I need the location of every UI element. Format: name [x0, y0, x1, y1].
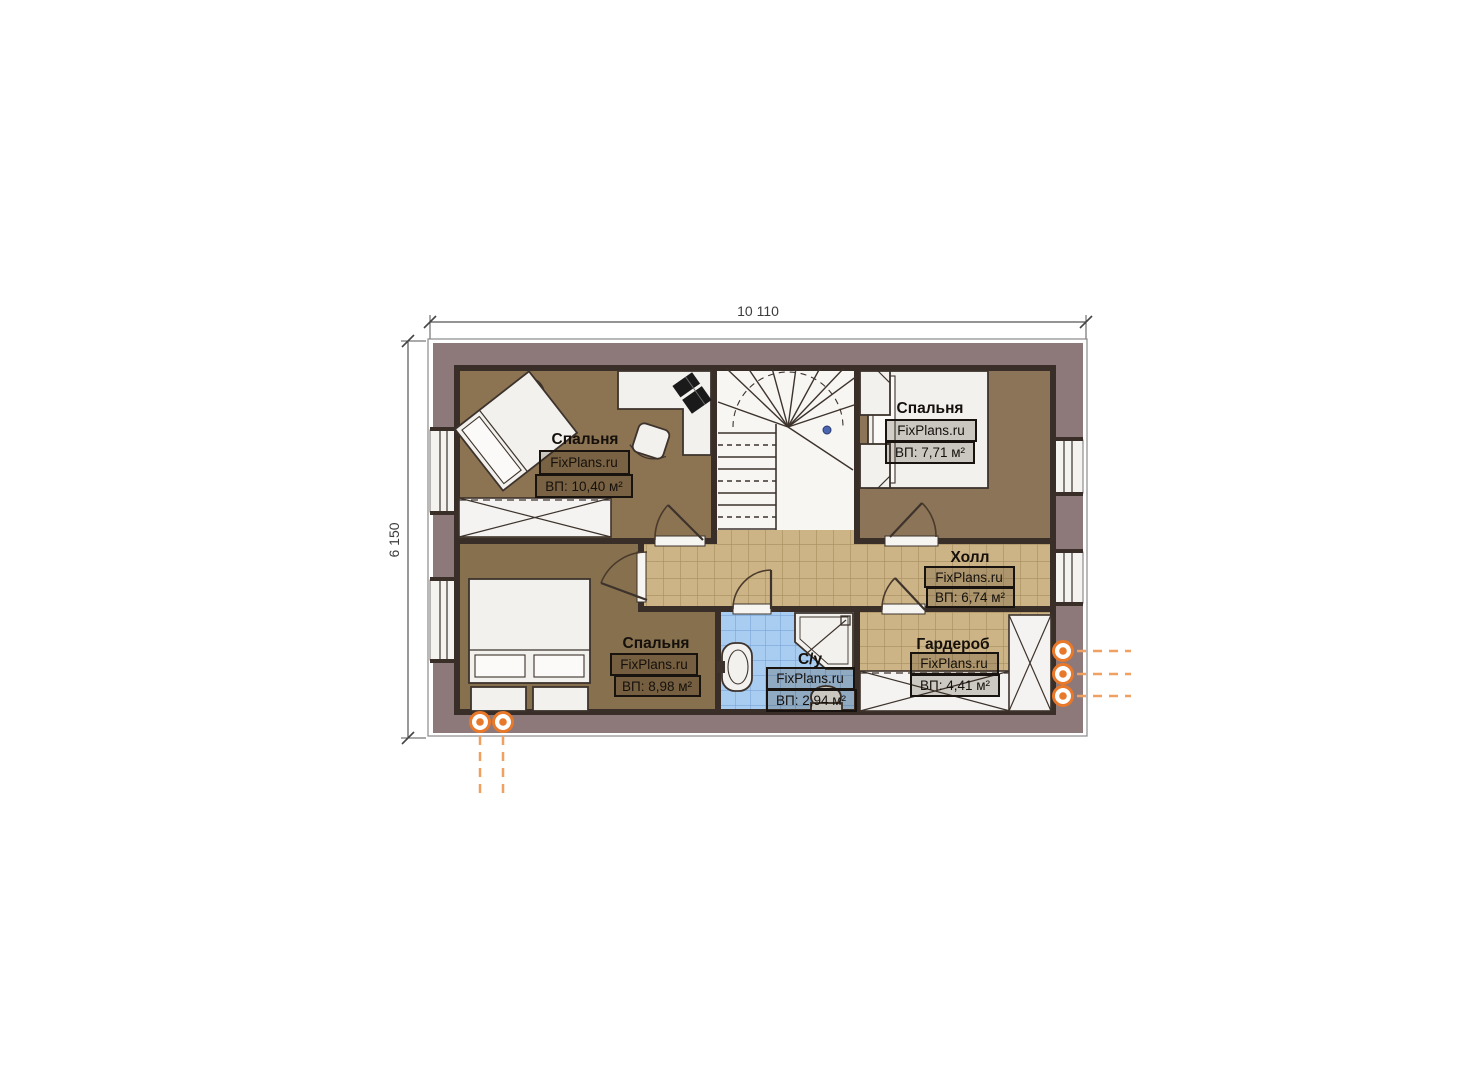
dimension-left: 6 150: [386, 335, 426, 744]
vent-icon: [1054, 642, 1073, 661]
room-brand-label: FixPlans.ru: [550, 455, 618, 470]
room-area-label: ВП: 4,41 м²: [920, 678, 991, 693]
room-brand-label: FixPlans.ru: [776, 671, 844, 686]
stair-marker-dot: [823, 426, 831, 434]
room-brand-label: FixPlans.ru: [920, 656, 988, 671]
window-left-bottom: [430, 577, 457, 663]
room-area-label: ВП: 7,71 м²: [895, 445, 966, 460]
window-left-top: [430, 427, 457, 515]
label-bedroom-bottom-left: Спальня FixPlans.ru ВП: 8,98 м²: [611, 635, 700, 696]
room-name-label: Гардероб: [916, 636, 989, 653]
room-area-label: ВП: 2,94 м²: [776, 693, 847, 708]
room-name-label: Спальня: [623, 635, 690, 652]
room-brand-label: FixPlans.ru: [935, 570, 1003, 585]
room-area-label: ВП: 6,74 м²: [935, 590, 1006, 605]
room-name-label: Спальня: [897, 400, 964, 417]
dimension-top: 10 110: [424, 303, 1092, 339]
room-area-label: ВП: 8,98 м²: [622, 679, 693, 694]
vent-icon: [1054, 687, 1073, 706]
room-name-label: Спальня: [552, 431, 619, 448]
bedside-bench: [471, 687, 526, 711]
dimension-width-label: 10 110: [737, 303, 779, 319]
room-area-label: ВП: 10,40 м²: [545, 479, 623, 494]
label-bedroom-top-right: Спальня FixPlans.ru ВП: 7,71 м²: [886, 400, 976, 463]
wardrobe-unit-crossed: [459, 498, 611, 537]
room-name-label: С/у: [798, 651, 823, 668]
nightstand: [860, 371, 890, 415]
bedside-bench: [533, 687, 588, 711]
floor-plan-drawing: 10 110 6 150: [0, 0, 1473, 1080]
room-brand-label: FixPlans.ru: [897, 423, 965, 438]
wardrobe-unit-crossed: [1009, 615, 1051, 711]
vent-icon: [471, 713, 490, 732]
dimension-height-label: 6 150: [386, 522, 402, 557]
pillow: [475, 655, 525, 677]
room-brand-label: FixPlans.ru: [620, 657, 688, 672]
room-name-label: Холл: [951, 549, 990, 566]
floor-plan-page: 10 110 6 150: [0, 0, 1473, 1080]
label-wardrobe: Гардероб FixPlans.ru ВП: 4,41 м²: [911, 636, 999, 696]
window-right-hall: [1054, 549, 1083, 606]
window-right-top: [1054, 437, 1083, 496]
vent-icon: [494, 713, 513, 732]
pillow: [534, 655, 584, 677]
vent-icon: [1054, 665, 1073, 684]
